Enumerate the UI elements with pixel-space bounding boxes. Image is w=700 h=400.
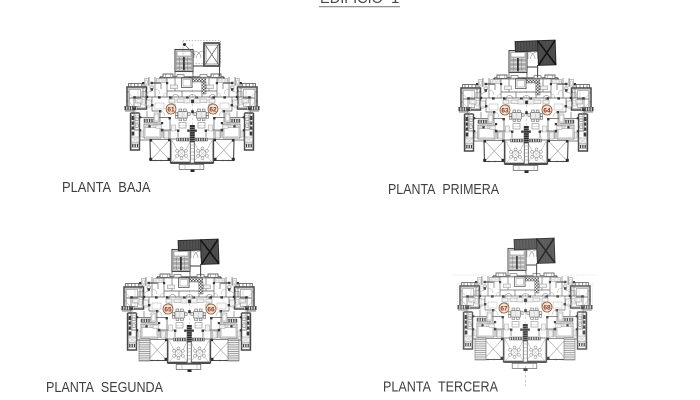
svg-text:64: 64 (543, 107, 551, 114)
svg-text:1: 1 (391, 0, 399, 7)
svg-text:PLANTA PRIMERA: PLANTA PRIMERA (388, 182, 499, 198)
svg-text:62: 62 (209, 106, 217, 113)
svg-text:PLANTA TERCERA: PLANTA TERCERA (383, 380, 498, 396)
svg-text:61: 61 (167, 106, 175, 113)
svg-text:PLANTA SEGUNDA: PLANTA SEGUNDA (46, 380, 163, 396)
svg-text:67: 67 (500, 305, 508, 312)
svg-text:65: 65 (164, 306, 172, 313)
svg-text:68: 68 (543, 304, 551, 311)
svg-text:63: 63 (501, 107, 509, 114)
svg-text:66: 66 (207, 306, 215, 313)
svg-text:PLANTA BAJA: PLANTA BAJA (62, 180, 151, 196)
svg-text:EDIFICIO: EDIFICIO (320, 0, 383, 7)
